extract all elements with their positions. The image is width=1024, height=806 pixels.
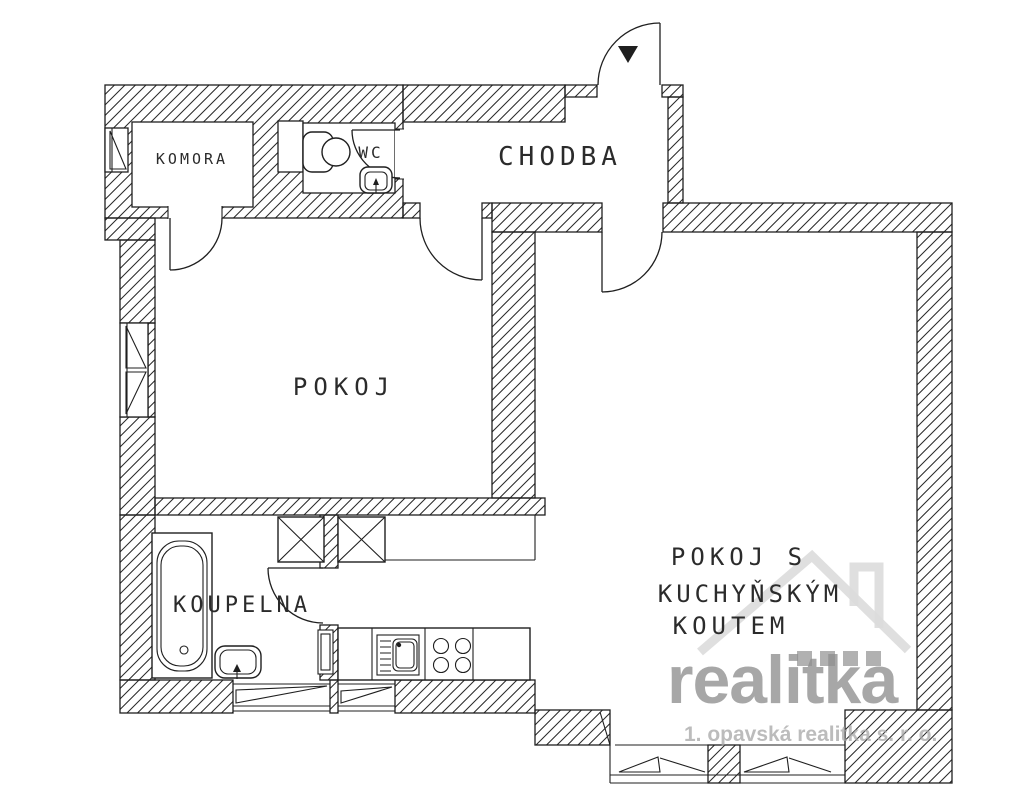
kitchen-counter <box>338 628 530 680</box>
koupelna-door <box>268 568 333 674</box>
wall-segment <box>105 218 155 240</box>
wall-segment <box>708 745 740 783</box>
wall-segment <box>845 710 952 783</box>
wall-niche <box>278 121 303 172</box>
ventilation-shaft-icon <box>338 517 385 562</box>
watermark-subtitle: 1. opavská realitka s. r. o. <box>684 723 937 746</box>
floor-plan-drawing: realitka 1. opavská realitka s. r. o. KO… <box>0 0 1024 806</box>
room-label-pokoj-kk-line2: KUCHYŇSKÝM <box>658 579 843 608</box>
koupelna-door-panel-inner <box>321 634 330 670</box>
entrance-marker-icon <box>618 46 638 63</box>
pokoj-window <box>120 323 148 417</box>
kitchen-window <box>338 684 395 711</box>
wall-segment <box>120 680 233 713</box>
wall-segment <box>120 417 155 515</box>
wall-segment <box>403 85 565 122</box>
wc-washbasin-icon <box>360 167 392 193</box>
komora-door <box>170 218 222 270</box>
komora-door-opening <box>168 206 222 219</box>
wall-segment <box>662 85 683 97</box>
wall-segment <box>482 203 492 218</box>
room-label-komora: KOMORA <box>156 150 228 168</box>
washbasin-icon <box>215 646 261 679</box>
wall-segment <box>668 97 683 203</box>
wall-segment <box>395 680 535 713</box>
room-label-wc: WC <box>358 143 383 162</box>
entrance-door <box>598 23 660 85</box>
wall-segment <box>663 203 952 232</box>
watermark-brand: realitka <box>667 642 899 718</box>
room-label-pokoj: POKOJ <box>293 373 395 401</box>
komora-window <box>105 128 128 172</box>
wall-segment <box>120 240 155 323</box>
room-label-chodba: CHODBA <box>498 142 622 172</box>
kitchen-sink-icon <box>377 635 419 675</box>
wc-door-opening <box>395 129 404 179</box>
bay-window-right <box>740 745 845 772</box>
wall-segment <box>148 323 155 417</box>
watermark: realitka 1. opavská realitka s. r. o. <box>667 642 937 746</box>
wall-segment <box>565 85 597 97</box>
wall-segment <box>535 710 610 745</box>
wall-segment <box>330 680 338 713</box>
ventilation-shaft-icon <box>278 517 324 562</box>
wall-segment <box>492 203 602 232</box>
living-room-door <box>602 232 662 292</box>
room-label-pokoj-kk-line1: POKOJ S <box>671 543 807 571</box>
floor-plan-page: realitka 1. opavská realitka s. r. o. KO… <box>0 0 1024 806</box>
room-label-pokoj-kk-line3: KOUTEM <box>673 612 790 640</box>
wall-segment <box>492 232 535 498</box>
room-label-koupelna: KOUPELNA <box>173 593 311 618</box>
pokoj-door <box>420 218 482 280</box>
hall-boundary-lines <box>385 515 535 560</box>
logo-chimney-icon <box>854 567 879 628</box>
wall-segment <box>917 232 952 710</box>
wall-segment <box>403 203 420 218</box>
koupelna-window <box>233 684 330 711</box>
wall-segment <box>120 515 155 680</box>
wall-segment <box>155 498 545 515</box>
